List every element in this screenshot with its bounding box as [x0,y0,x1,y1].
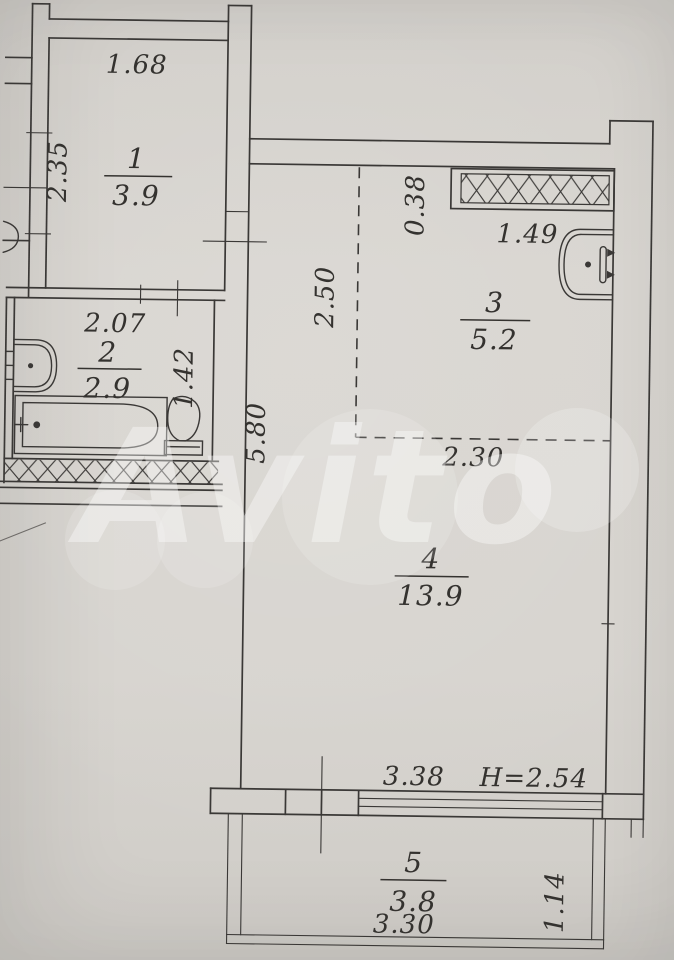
balcony-door-axis [321,757,322,853]
watermark: Avito [65,396,639,590]
room4-area: 13.9 [397,579,464,613]
window-sill-line [358,806,602,809]
floor-plan-svg: 1.68 2.35 1 3.9 2.07 1.42 2 2.9 0.38 1.4… [0,0,674,960]
window-sill-line [359,798,603,801]
door-opening-mark [203,241,266,242]
floor-plan-photo: 1.68 2.35 1 3.9 2.07 1.42 2 2.9 0.38 1.4… [0,0,674,960]
room1-number: 1 [127,142,146,175]
room3-area: 5.2 [470,323,518,357]
watermark-text: Avito [67,396,563,580]
dim-room2-width: 2.07 [83,308,146,339]
room3-label-divider [460,320,530,321]
dim-ceiling-height: H=2.54 [478,763,588,795]
paper-edge-line [0,522,45,542]
room2-label-divider [78,368,142,369]
room2-number: 2 [97,336,117,369]
dim-vent-offset: 0.38 [400,174,431,236]
dim-balcony-width: 3.30 [373,910,435,941]
room3-number: 3 [485,286,504,319]
dim-room4-width: 3.38 [383,762,445,793]
kitchen-sink-icon [559,229,616,300]
dim-room1-width: 1.68 [106,50,168,81]
dim-room3-depth: 2.50 [310,266,341,329]
vent-shaft-hatch [461,174,609,205]
balcony-walls [227,814,644,950]
room1-area: 3.9 [112,179,160,213]
dim-vent-width: 1.49 [496,219,558,250]
room5-label-divider [380,880,446,881]
dim-balcony-depth: 1.14 [540,871,571,933]
room5-number: 5 [404,846,423,879]
neighbor-fixture-icon [3,221,18,252]
dim-room1-depth: 2.35 [43,140,74,203]
room1-label-divider [104,176,172,177]
